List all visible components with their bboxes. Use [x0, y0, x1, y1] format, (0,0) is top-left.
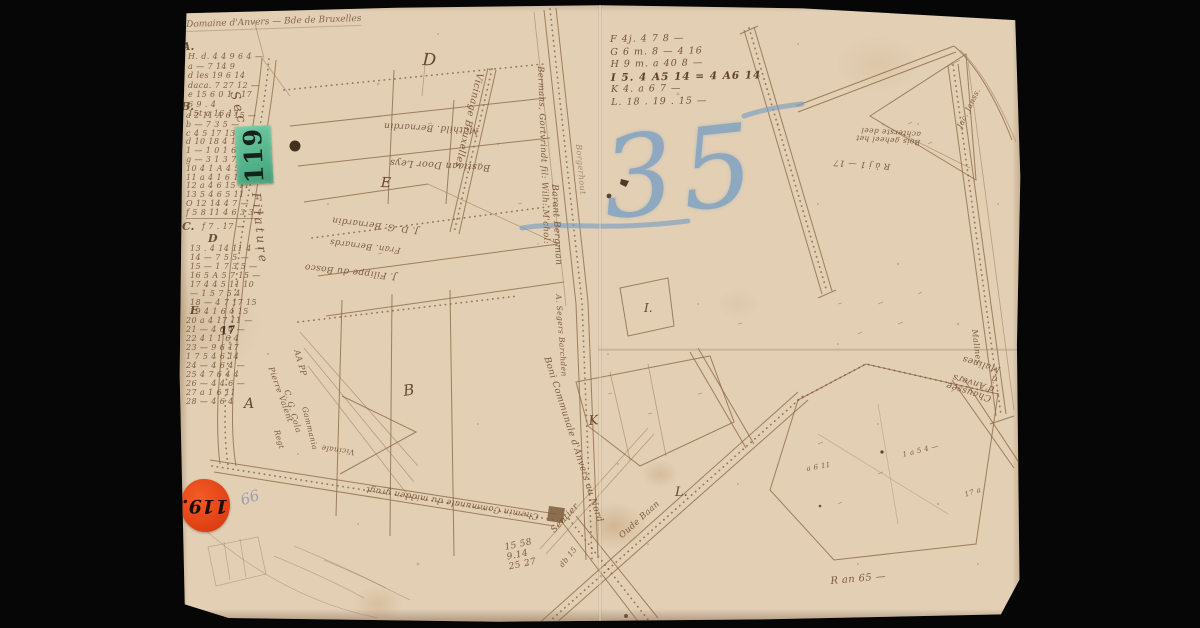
blue-crayon-number: 35 — [596, 99, 767, 245]
margin-section-letter-c: C. — [182, 220, 194, 233]
margin-rows-d: 13 . 4 14 11 4 —14 — 7 5 5 —15 — 1 7 3 5… — [190, 244, 263, 316]
handwritten-row: 16 5 A 5 7 15 — — [190, 271, 263, 280]
handwritten-row: 14 — 7 5 5 — — [190, 253, 263, 262]
handwritten-row: 18 — 4 7 17 15 — [190, 298, 263, 307]
handwritten-row: f 7 . 17 — — [202, 222, 245, 232]
handwritten-row: 20 a 4 17 11 — — [186, 316, 253, 325]
parcel-letter-D: D — [422, 50, 437, 71]
legend-list: F 4j. 4 7 8 —G 6 m. 8 — 4 16H 9 m. a 40 … — [610, 31, 762, 109]
handwritten-row: 28 — 4 6 4 — [186, 397, 253, 406]
parcel-letter-I: I. — [644, 301, 653, 315]
handwritten-row: 25 4 7 6 4 4 — [186, 370, 253, 379]
margin-rows-c: f 7 . 17 — — [202, 222, 245, 232]
handwritten-row: 26 — 4 4 6 — — [186, 379, 253, 388]
parcel-letter-L: L. — [675, 485, 688, 500]
margin-rows-a: H. d. 4 4 9 6 4 —a — 7 14 9d les 19 6 14… — [188, 52, 263, 119]
handwritten-row: d les 19 6 14 — [188, 71, 263, 81]
margin-bold-mark: 17 — [219, 323, 236, 338]
handwritten-row: 24 — 4 6 4 — — [186, 361, 253, 370]
handwritten-row: — 1 5 7 5 4 — [190, 289, 263, 298]
scanned-map-photo: Domaine d'Anvers — Bde de Bruxelles A. H… — [0, 0, 1200, 628]
parcel-letter-A: A — [244, 396, 254, 412]
handwritten-row: 13 . 4 14 11 4 — — [190, 244, 263, 253]
red-sticker-number: 119. — [182, 495, 228, 517]
handwritten-row: 22 4 1 1 6 4 — [186, 334, 253, 343]
vertical-fold-crease — [598, 4, 602, 623]
handwritten-row: 17 4 4 5 11 10 — [190, 280, 263, 289]
parcel-letter-B: B — [402, 380, 415, 399]
handwritten-row: 27 a 1 6 11 — [186, 388, 253, 397]
parcel-letter-E: E — [380, 175, 391, 191]
green-inventory-sticker: 119 — [235, 125, 274, 185]
green-sticker-number: 119 — [238, 127, 270, 184]
handwritten-row: H. d. 4 4 9 6 4 — — [188, 52, 263, 62]
handwritten-row: 6 9 . 4 — [188, 100, 263, 110]
handwritten-row: daca. 7 27 12 — — [188, 81, 263, 91]
handwritten-row: 23 — 9 6 17 — [186, 343, 253, 352]
handwritten-row: 19 4 1 6 4 15 — [190, 307, 263, 316]
handwritten-row: a — 7 14 9 — [188, 62, 263, 72]
paper-sheet: Domaine d'Anvers — Bde de Bruxelles A. H… — [178, 4, 1022, 623]
red-inventory-sticker: 119. — [181, 479, 230, 532]
survey-numbers-cluster: 15 58 9.14 25 27 — [504, 538, 537, 573]
handwritten-row: 15 — 1 7 3 5 — — [190, 262, 263, 271]
parcel-letter-K: K — [588, 413, 599, 429]
handwritten-row: 1 7 5 4 6 14 — [186, 352, 253, 361]
